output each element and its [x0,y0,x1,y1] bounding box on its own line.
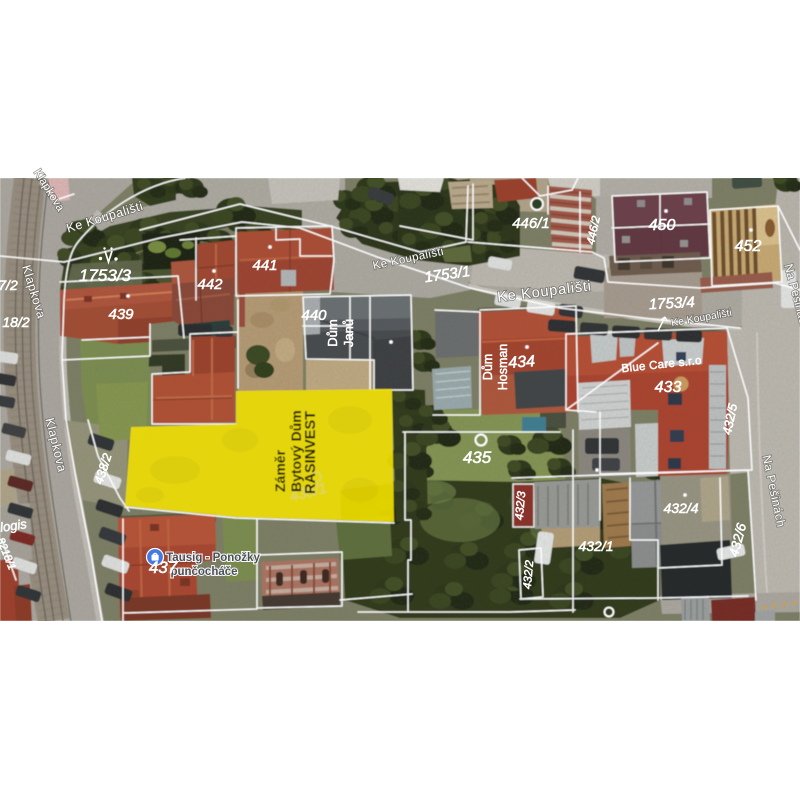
svg-text:punčocháče: punčocháče [170,566,237,578]
svg-text:432/4: 432/4 [663,500,698,516]
svg-text:Hosman: Hosman [496,344,510,391]
svg-text:Záměr: Záměr [272,449,288,492]
svg-text:432/3: 432/3 [514,490,529,520]
svg-text:Dům: Dům [325,319,340,346]
svg-text:1753/4: 1753/4 [648,294,695,313]
svg-text:Bytový Dům: Bytový Dům [288,410,304,492]
svg-text:435: 435 [463,448,492,467]
svg-text:18/2: 18/2 [2,314,29,330]
svg-text:1753/3: 1753/3 [79,266,132,285]
svg-text:RASINVEST: RASINVEST [303,411,319,494]
svg-text:442: 442 [197,276,223,293]
svg-text:437: 437 [149,558,178,577]
svg-text:7/2: 7/2 [0,277,18,293]
svg-text:Tausig - Ponožky: Tausig - Ponožky [166,552,260,564]
svg-text:433: 433 [655,379,682,396]
svg-text:434: 434 [508,353,536,372]
svg-text:440: 440 [301,307,327,324]
svg-text:446/1: 446/1 [512,215,550,232]
svg-text:441: 441 [252,257,277,274]
svg-text:432/2: 432/2 [522,559,537,589]
svg-text:432/1: 432/1 [578,538,613,554]
svg-text:439: 439 [108,306,134,323]
svg-text:Janů: Janů [341,319,356,347]
svg-text:Dům: Dům [481,354,495,380]
svg-text:452: 452 [735,238,762,255]
svg-text:450: 450 [649,217,676,234]
